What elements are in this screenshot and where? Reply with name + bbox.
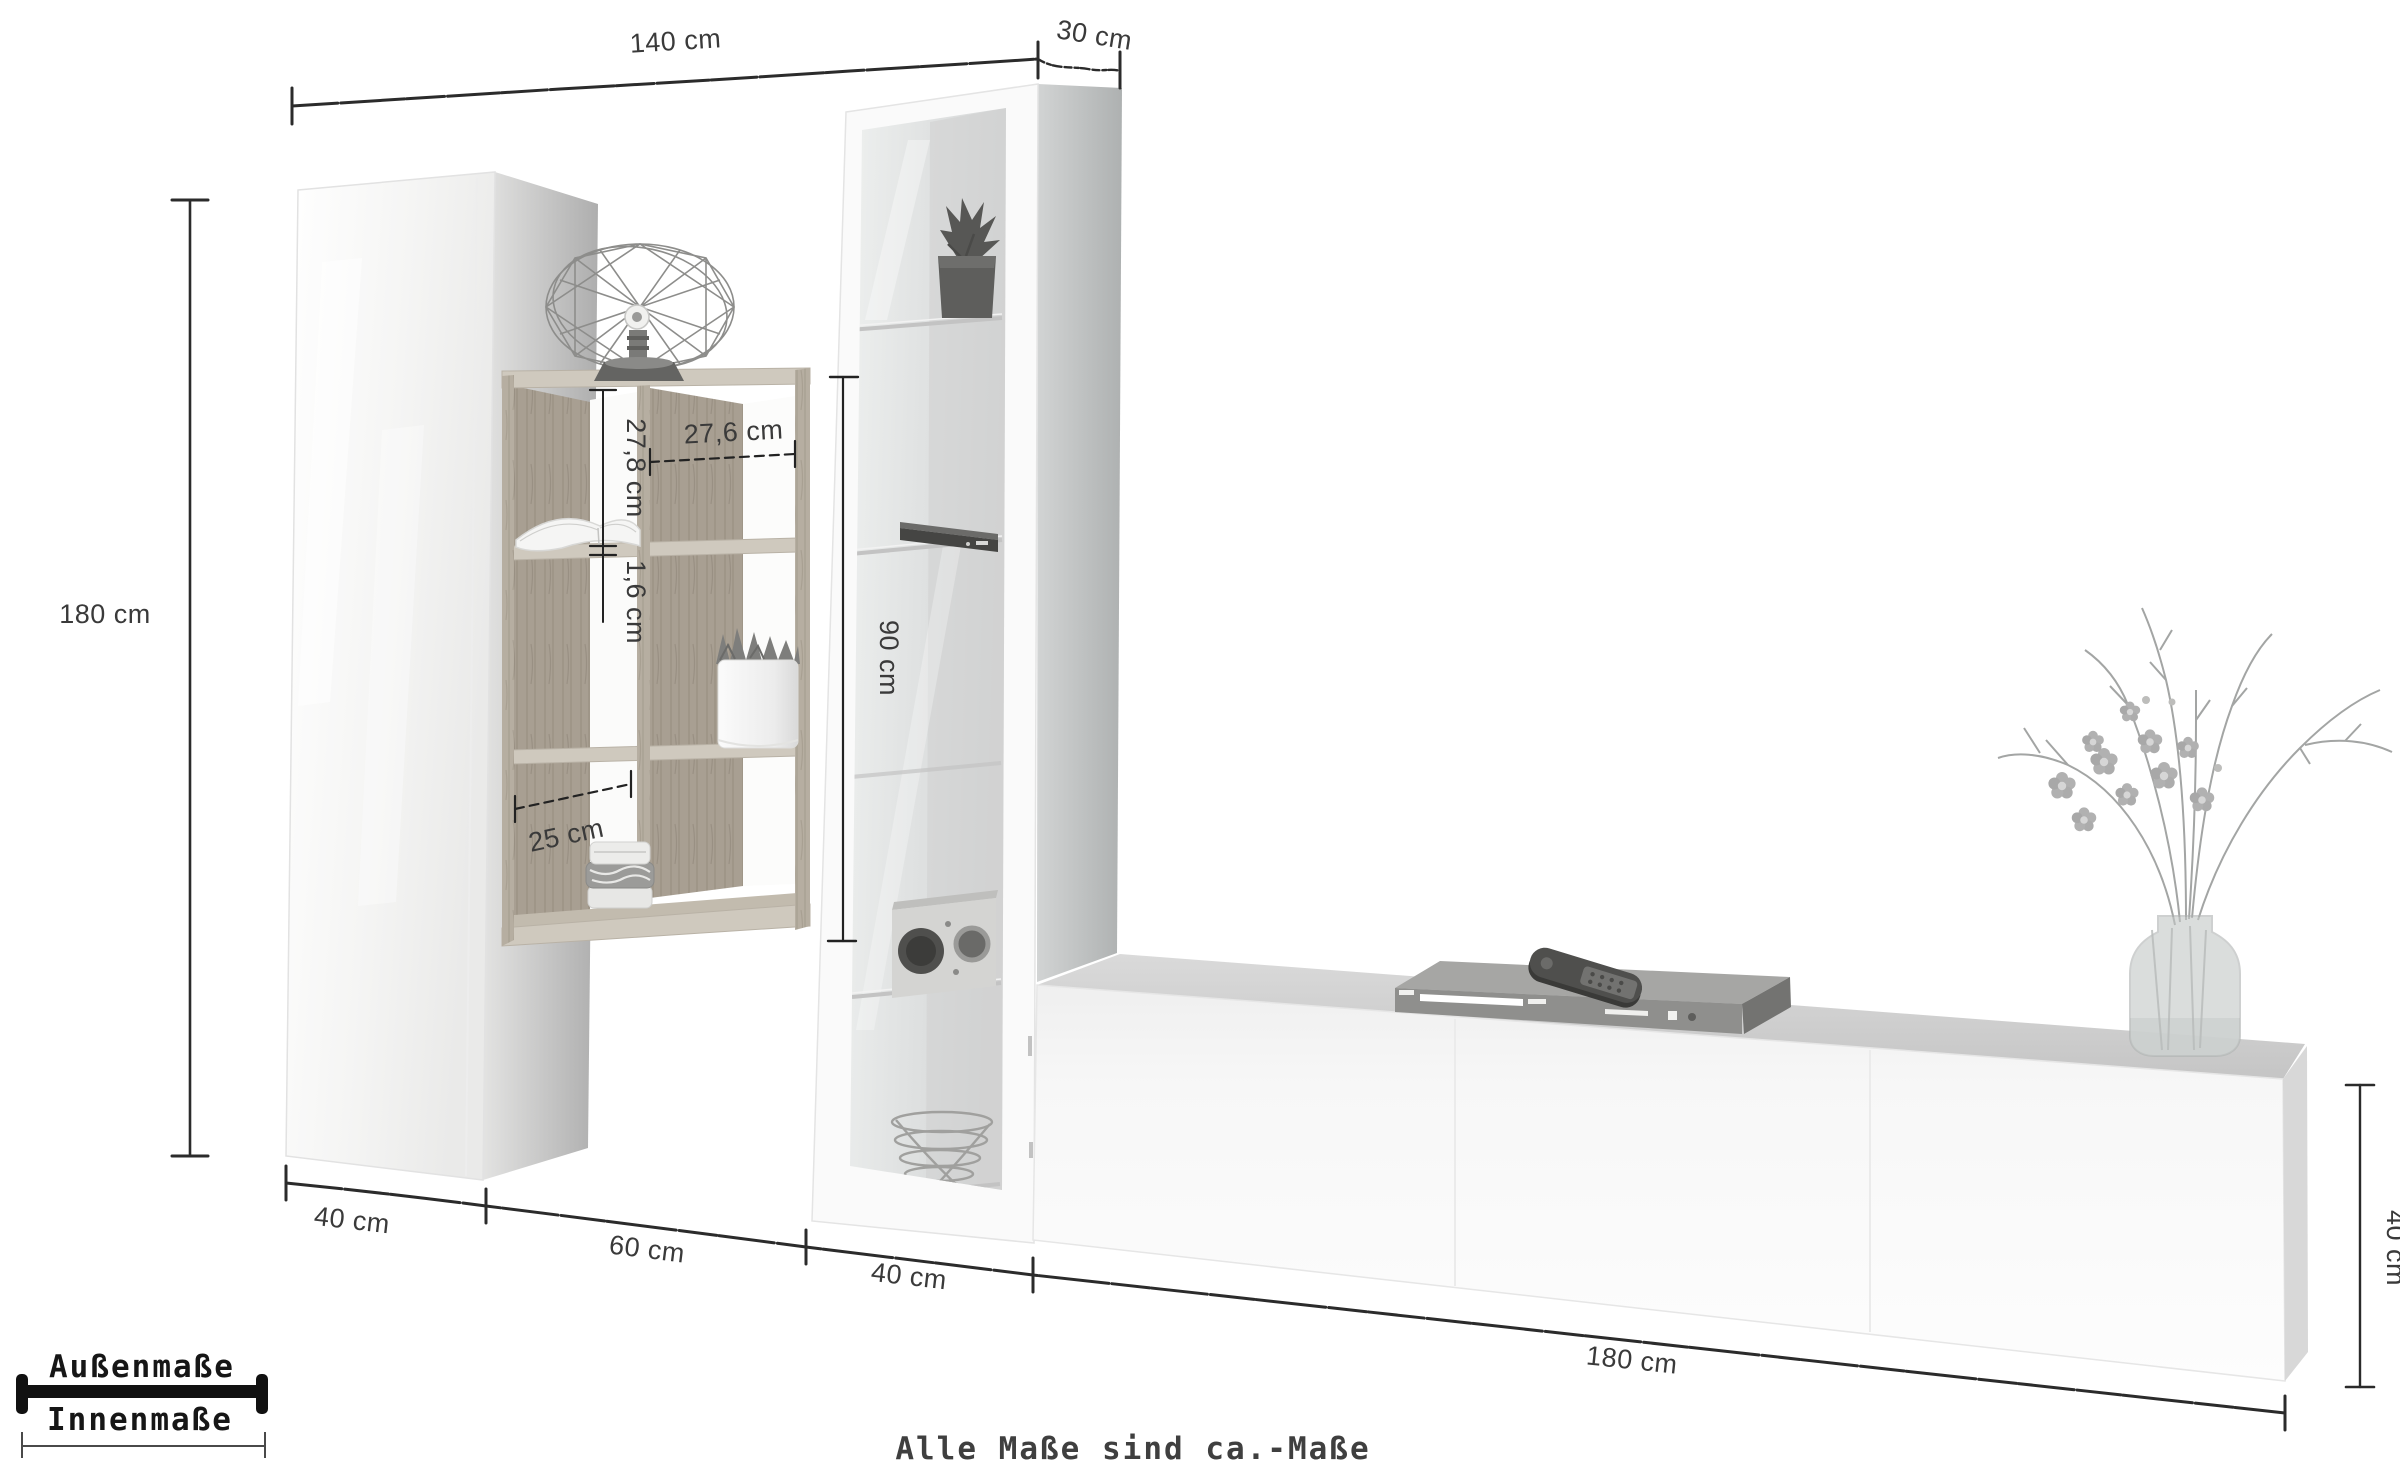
vitrine-side-panel: [1037, 84, 1122, 982]
dim-shelf-width-label: 60 cm: [608, 1230, 687, 1269]
dim-board-thickness-label: 1,6 cm: [621, 560, 651, 644]
potted-grass-plant: [716, 628, 800, 748]
legend: Außenmaße Innenmaße: [16, 1349, 268, 1458]
footnote: Alle Maße sind ca.-Maße: [895, 1431, 1370, 1467]
shelf-left-wall: [502, 375, 514, 946]
dim-total-width-label: 140 cm: [629, 23, 722, 59]
glass-vase: [2130, 916, 2240, 1056]
lowboard-right-side: [2283, 1046, 2308, 1381]
dim-lowboard-height-label: 40 cm: [2381, 1210, 2400, 1286]
radio-speaker: [892, 890, 998, 998]
wall-unit-illustration: [286, 84, 2392, 1381]
dim-lowboard-height: 40 cm: [2346, 1085, 2400, 1387]
furniture-dimension-diagram: 140 cm 30 cm 180 cm 40 cm 60 cm 40 cm 18…: [0, 0, 2400, 1475]
legend-inner-label: Innenmaße: [47, 1402, 233, 1438]
dim-lowboard-length-label: 180 cm: [1585, 1340, 1679, 1379]
folded-towels: [586, 842, 654, 908]
shelf-divider-inner-face: [650, 388, 743, 898]
dim-total-height-label: 180 cm: [59, 599, 151, 629]
dim-cabinet-width-label: 40 cm: [313, 1201, 392, 1239]
branches: [1998, 608, 2392, 925]
dim-depth: 30 cm: [1038, 14, 1134, 88]
dim-depth-label: 30 cm: [1055, 14, 1135, 56]
legend-outer-label: Außenmaße: [49, 1349, 235, 1385]
dim-vitrine-inner-height-label: 90 cm: [874, 620, 904, 696]
vase-with-branches: [1998, 608, 2392, 1056]
dim-cube-inner-height-label: 27,8 cm: [621, 418, 651, 518]
dim-total-height: 180 cm: [59, 200, 208, 1156]
dim-cube-inner-width-label: 27,6 cm: [683, 414, 784, 449]
